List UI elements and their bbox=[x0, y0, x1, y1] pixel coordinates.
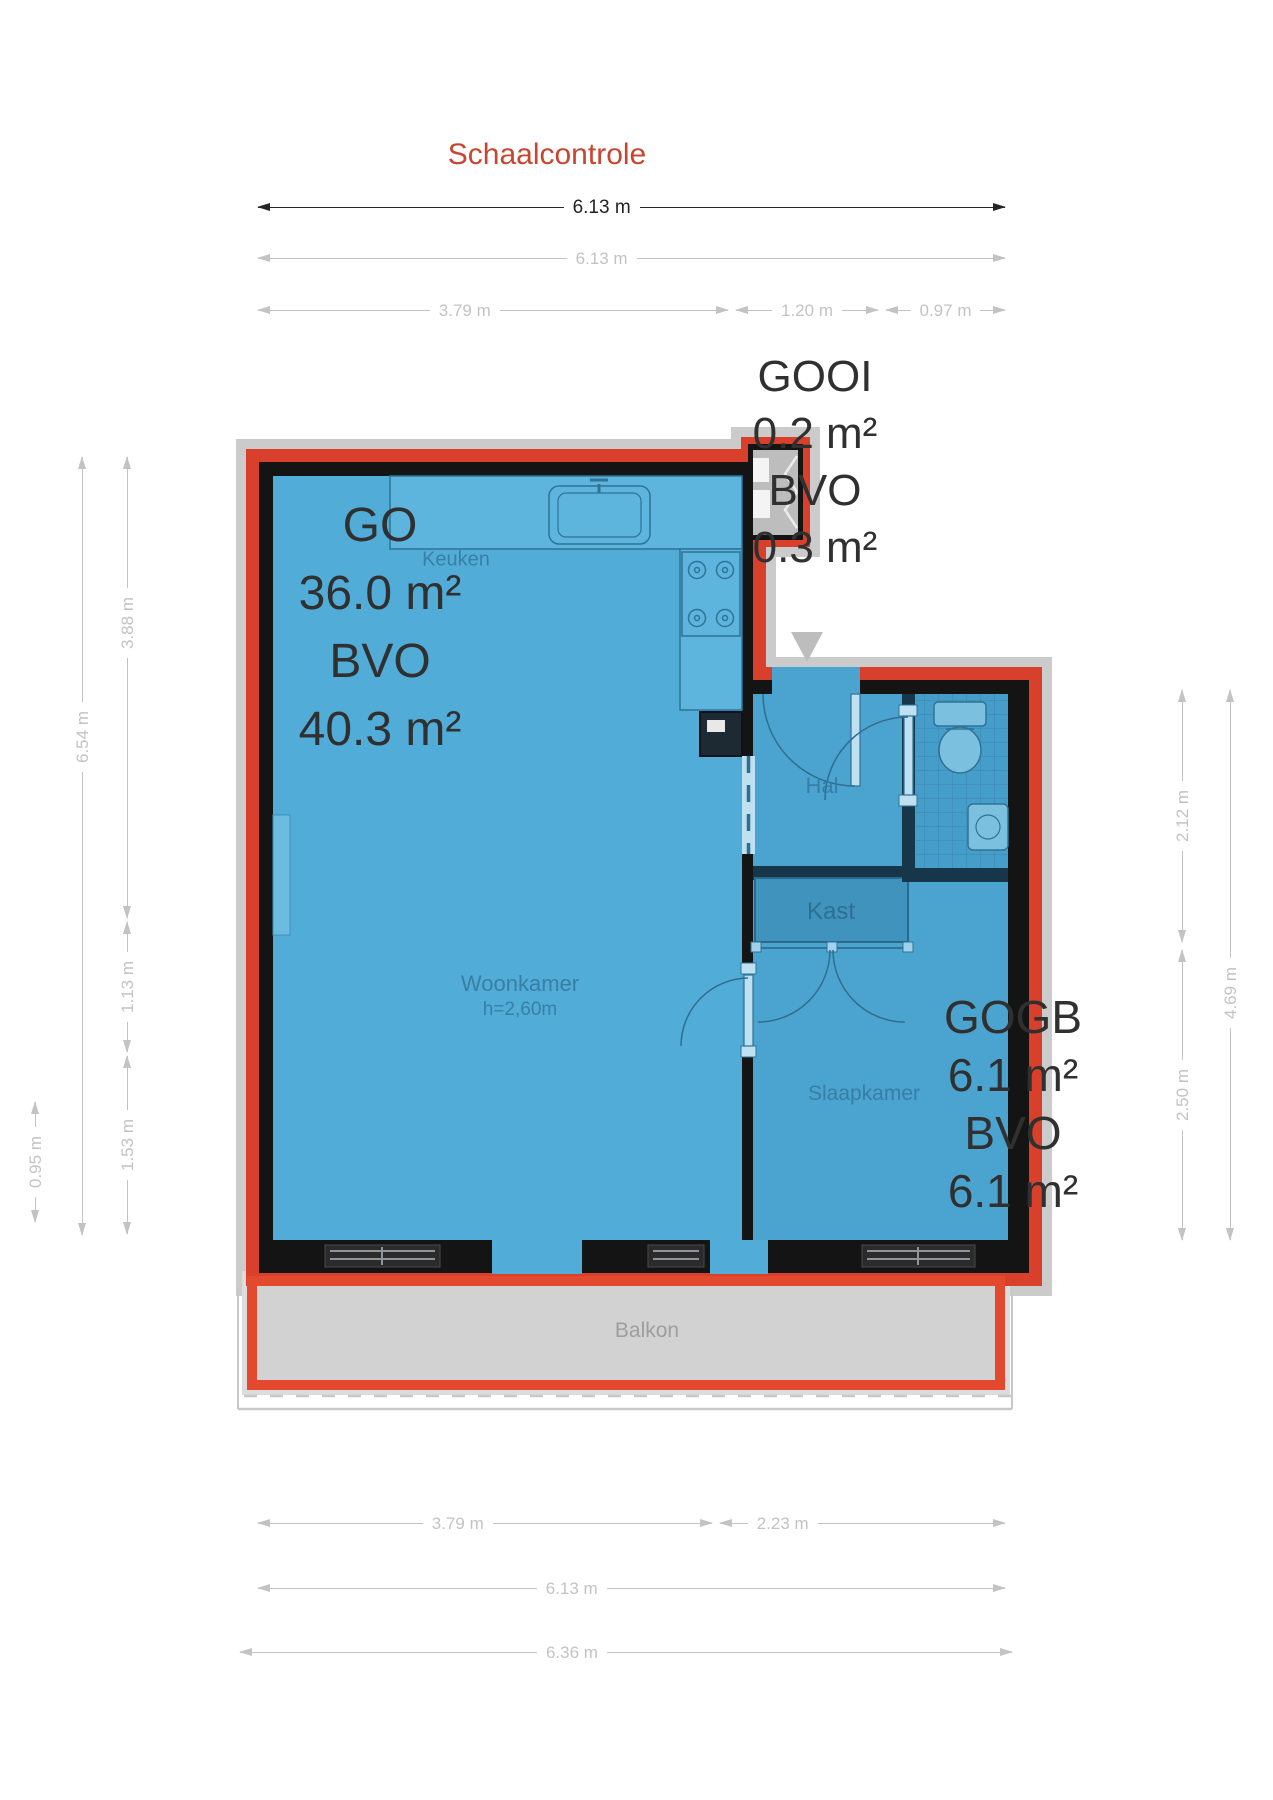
gogb-bvo: BVO bbox=[898, 1104, 1128, 1162]
dim-top-total-secondary: 6.13 m bbox=[258, 258, 1005, 259]
go-bvo-area: 40.3 m² bbox=[250, 696, 510, 764]
dim-bottom-seg-a: 3.79 m bbox=[258, 1523, 712, 1524]
room-label-hal: Hal bbox=[805, 773, 838, 799]
window-bedroom bbox=[862, 1245, 975, 1267]
area-label-go: GO 36.0 m² BVO 40.3 m² bbox=[250, 492, 510, 764]
dim-right-seg-b: 2.50 m bbox=[1182, 950, 1183, 1240]
room-label-keuken: Keuken bbox=[422, 549, 490, 572]
dim-top-total-primary: 6.13 m bbox=[258, 207, 1005, 208]
radiator bbox=[273, 815, 290, 935]
go-bvo: BVO bbox=[250, 628, 510, 696]
dim-left-seg-a: 3.88 m bbox=[127, 457, 128, 918]
floorplan-page: Schaalcontrole GO 36.0 m² BVO 40.3 m² GO… bbox=[0, 0, 1273, 1800]
gooi-bvo: BVO bbox=[700, 462, 930, 519]
area-label-gooi: GOOI 0.2 m² BVO 0.3 m² bbox=[700, 348, 930, 576]
dim-left-seg-b: 1.13 m bbox=[127, 922, 128, 1052]
washbasin-icon bbox=[968, 804, 1008, 850]
gogb-area: 6.1 m² bbox=[898, 1046, 1128, 1104]
dim-right-seg-a: 2.12 m bbox=[1182, 690, 1183, 942]
open-boundary-dashed bbox=[742, 756, 755, 854]
dim-bottom-seg-b: 2.23 m bbox=[720, 1523, 1005, 1524]
dim-left-balcony-depth: 0.95 m bbox=[35, 1102, 36, 1222]
dim-top-seg-a: 3.79 m bbox=[258, 310, 728, 311]
dim-right-total: 4.69 m bbox=[1230, 690, 1231, 1240]
dim-top-seg-c: 0.97 m bbox=[886, 310, 1005, 311]
gogb-name: GOGB bbox=[898, 988, 1128, 1046]
area-label-gogb: GOGB 6.1 m² BVO 6.1 m² bbox=[898, 988, 1128, 1220]
window-living bbox=[325, 1245, 440, 1267]
oven-icon bbox=[700, 712, 742, 756]
room-label-balkon: Balkon bbox=[615, 1319, 679, 1343]
room-label-slaapkamer: Slaapkamer bbox=[808, 1082, 920, 1106]
room-label-woonkamer-height: h=2,60m bbox=[483, 999, 557, 1021]
floorplan-drawing bbox=[0, 0, 1273, 1800]
gooi-area: 0.2 m² bbox=[700, 405, 930, 462]
dim-top-seg-b: 1.20 m bbox=[736, 310, 878, 311]
room-label-kast: Kast bbox=[807, 898, 855, 926]
gooi-bvo-area: 0.3 m² bbox=[700, 519, 930, 576]
window-middle bbox=[648, 1245, 704, 1267]
dim-bottom-total: 6.13 m bbox=[258, 1588, 1005, 1589]
page-title: Schaalcontrole bbox=[347, 138, 747, 172]
gooi-name: GOOI bbox=[700, 348, 930, 405]
dim-left-total: 6.54 m bbox=[82, 457, 83, 1235]
toilet-icon bbox=[934, 702, 986, 773]
gogb-bvo-area: 6.1 m² bbox=[898, 1162, 1128, 1220]
dim-left-seg-c: 1.53 m bbox=[127, 1056, 128, 1234]
room-label-woonkamer: Woonkamer bbox=[461, 971, 579, 997]
dim-bottom-outer-total: 6.36 m bbox=[240, 1652, 1012, 1653]
